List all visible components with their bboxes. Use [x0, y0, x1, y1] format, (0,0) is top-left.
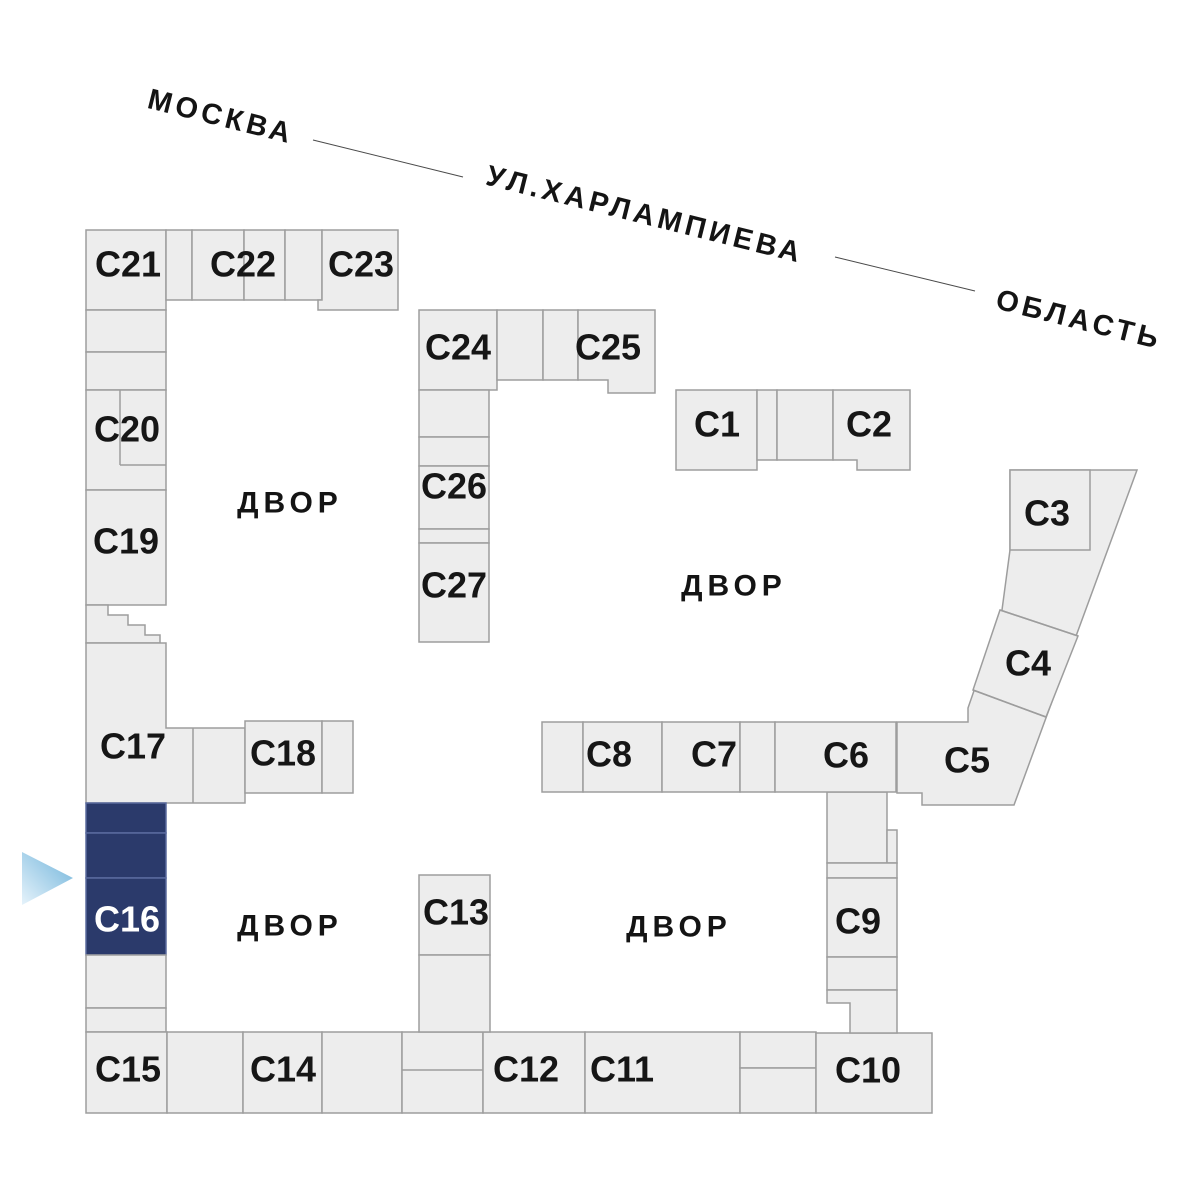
section-cell — [86, 833, 166, 878]
section-cell — [402, 1032, 483, 1113]
courtyard-label: ДВОР — [626, 911, 732, 944]
section-label-С21: С21 — [95, 244, 161, 285]
section-label-С12: С12 — [493, 1049, 559, 1090]
site-plan-svg: МОСКВА УЛ.ХАРЛАМПИЕВА ОБЛАСТЬ ДВОРДВОРДВ… — [0, 0, 1200, 1200]
section-label-С1: С1 — [694, 404, 740, 445]
direction-oblast-label: ОБЛАСТЬ — [993, 284, 1166, 356]
section-label-С14: С14 — [250, 1049, 316, 1090]
section-label-С7: С7 — [691, 734, 737, 775]
section-label-С18: С18 — [250, 733, 316, 774]
street-name-label: УЛ.ХАРЛАМПИЕВА — [483, 160, 807, 270]
section-cell — [86, 605, 160, 643]
section-label-С26: С26 — [421, 466, 487, 507]
section-label-С19: С19 — [93, 521, 159, 562]
section-cell — [285, 230, 322, 300]
section-label-С20: С20 — [94, 409, 160, 450]
selection-arrow-icon — [22, 852, 73, 905]
section-cell — [419, 529, 489, 543]
section-cell — [166, 230, 192, 300]
street-line-left — [313, 140, 463, 177]
section-cell — [887, 830, 897, 863]
section-cell — [322, 721, 353, 793]
section-cell — [419, 955, 490, 1032]
site-plan-page: МОСКВА УЛ.ХАРЛАМПИЕВА ОБЛАСТЬ ДВОРДВОРДВ… — [0, 0, 1200, 1200]
section-label-С9: С9 — [835, 901, 881, 942]
section-cell — [740, 1032, 816, 1068]
section-cell — [777, 390, 833, 460]
section-cell — [167, 1032, 243, 1113]
section-cell — [740, 1068, 816, 1113]
section-cell — [86, 955, 166, 1008]
section-С17[interactable] — [86, 643, 245, 803]
section-cell — [322, 1032, 402, 1113]
section-label-С17: С17 — [100, 726, 166, 767]
section-cell — [827, 863, 897, 878]
section-label-С13: С13 — [423, 892, 489, 933]
section-cell — [757, 390, 777, 460]
section-label-С6: С6 — [823, 735, 869, 776]
section-label-С15: С15 — [95, 1049, 161, 1090]
section-cell — [827, 792, 887, 863]
section-label-С11: С11 — [590, 1049, 654, 1090]
section-cell — [86, 352, 166, 390]
section-cell — [542, 722, 583, 792]
courtyard-label: ДВОР — [237, 487, 343, 520]
courtyard-label: ДВОР — [681, 570, 787, 603]
direction-moscow-label: МОСКВА — [144, 83, 297, 150]
section-cell — [419, 390, 489, 437]
section-cell — [86, 310, 166, 352]
section-cell — [497, 310, 543, 380]
section-cell — [86, 803, 166, 833]
section-label-С25: С25 — [575, 327, 641, 368]
section-label-С22: С22 — [210, 244, 276, 285]
section-label-С4: С4 — [1005, 643, 1051, 684]
section-label-С16: С16 — [94, 899, 160, 940]
section-cell — [543, 310, 578, 380]
section-label-С23: С23 — [328, 244, 394, 285]
courtyard-label: ДВОР — [237, 910, 343, 943]
section-label-С2: С2 — [846, 404, 892, 445]
section-label-С8: С8 — [586, 734, 632, 775]
courtyard-labels: ДВОРДВОРДВОРДВОР — [237, 487, 787, 944]
street-line-right — [835, 257, 975, 291]
section-label-С27: С27 — [421, 565, 487, 606]
section-cell — [419, 437, 489, 466]
section-cell — [86, 1008, 166, 1032]
section-label-С3: С3 — [1024, 493, 1070, 534]
section-label-С5: С5 — [944, 740, 990, 781]
section-cell — [827, 957, 897, 990]
section-label-С10: С10 — [835, 1050, 901, 1091]
section-cell — [827, 990, 897, 1033]
section-label-С24: С24 — [425, 327, 491, 368]
section-cell — [740, 722, 775, 792]
